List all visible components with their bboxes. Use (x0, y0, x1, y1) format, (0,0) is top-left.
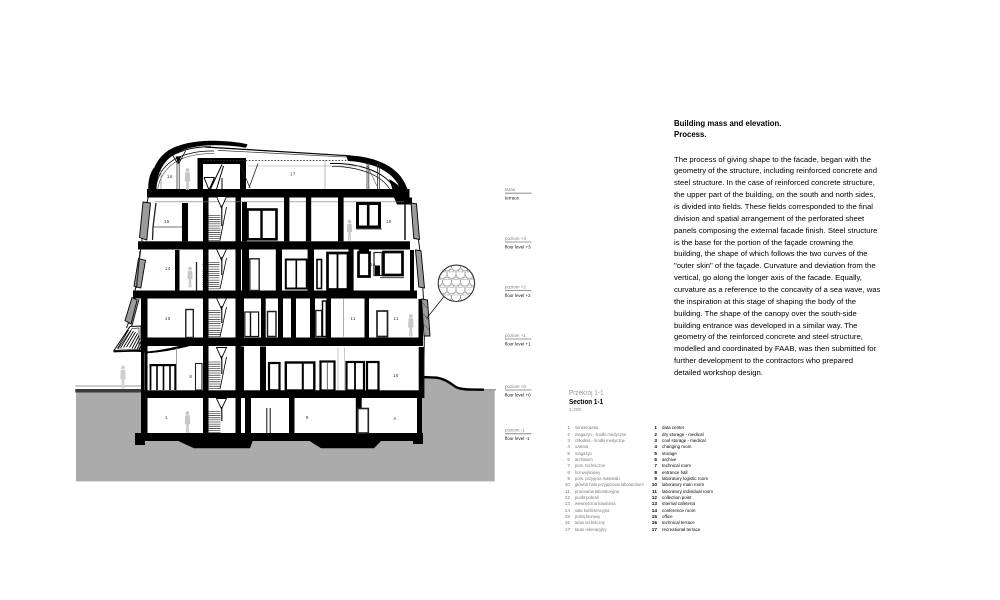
svg-text:floor level +0: floor level +0 (505, 392, 531, 397)
svg-text:poziom +0: poziom +0 (505, 384, 526, 389)
svg-text:poziom +2: poziom +2 (505, 284, 526, 289)
svg-text:poziom +3: poziom +3 (505, 236, 526, 241)
svg-text:terrace: terrace (505, 196, 520, 201)
svg-text:15: 15 (164, 219, 170, 224)
svg-text:8: 8 (190, 374, 193, 379)
svg-text:16: 16 (167, 174, 173, 179)
svg-text:floor level -1: floor level -1 (505, 436, 530, 441)
svg-text:10: 10 (393, 373, 399, 378)
svg-text:9: 9 (306, 415, 309, 420)
svg-text:14: 14 (165, 266, 171, 271)
svg-text:15: 15 (386, 219, 392, 224)
svg-text:poziom +1: poziom +1 (505, 333, 526, 338)
svg-text:17: 17 (290, 172, 296, 177)
svg-text:1: 1 (165, 415, 168, 420)
svg-text:14: 14 (370, 262, 376, 267)
svg-text:poziom -1: poziom -1 (505, 428, 525, 433)
svg-text:floor level +2: floor level +2 (505, 293, 531, 298)
svg-text:floor level +1: floor level +1 (505, 341, 531, 346)
svg-text:11: 11 (351, 316, 357, 321)
svg-text:15: 15 (165, 316, 171, 321)
svg-text:floor level +3: floor level +3 (505, 244, 531, 249)
svg-text:11: 11 (394, 316, 400, 321)
svg-text:taras: taras (505, 187, 516, 192)
svg-text:4: 4 (394, 416, 397, 421)
